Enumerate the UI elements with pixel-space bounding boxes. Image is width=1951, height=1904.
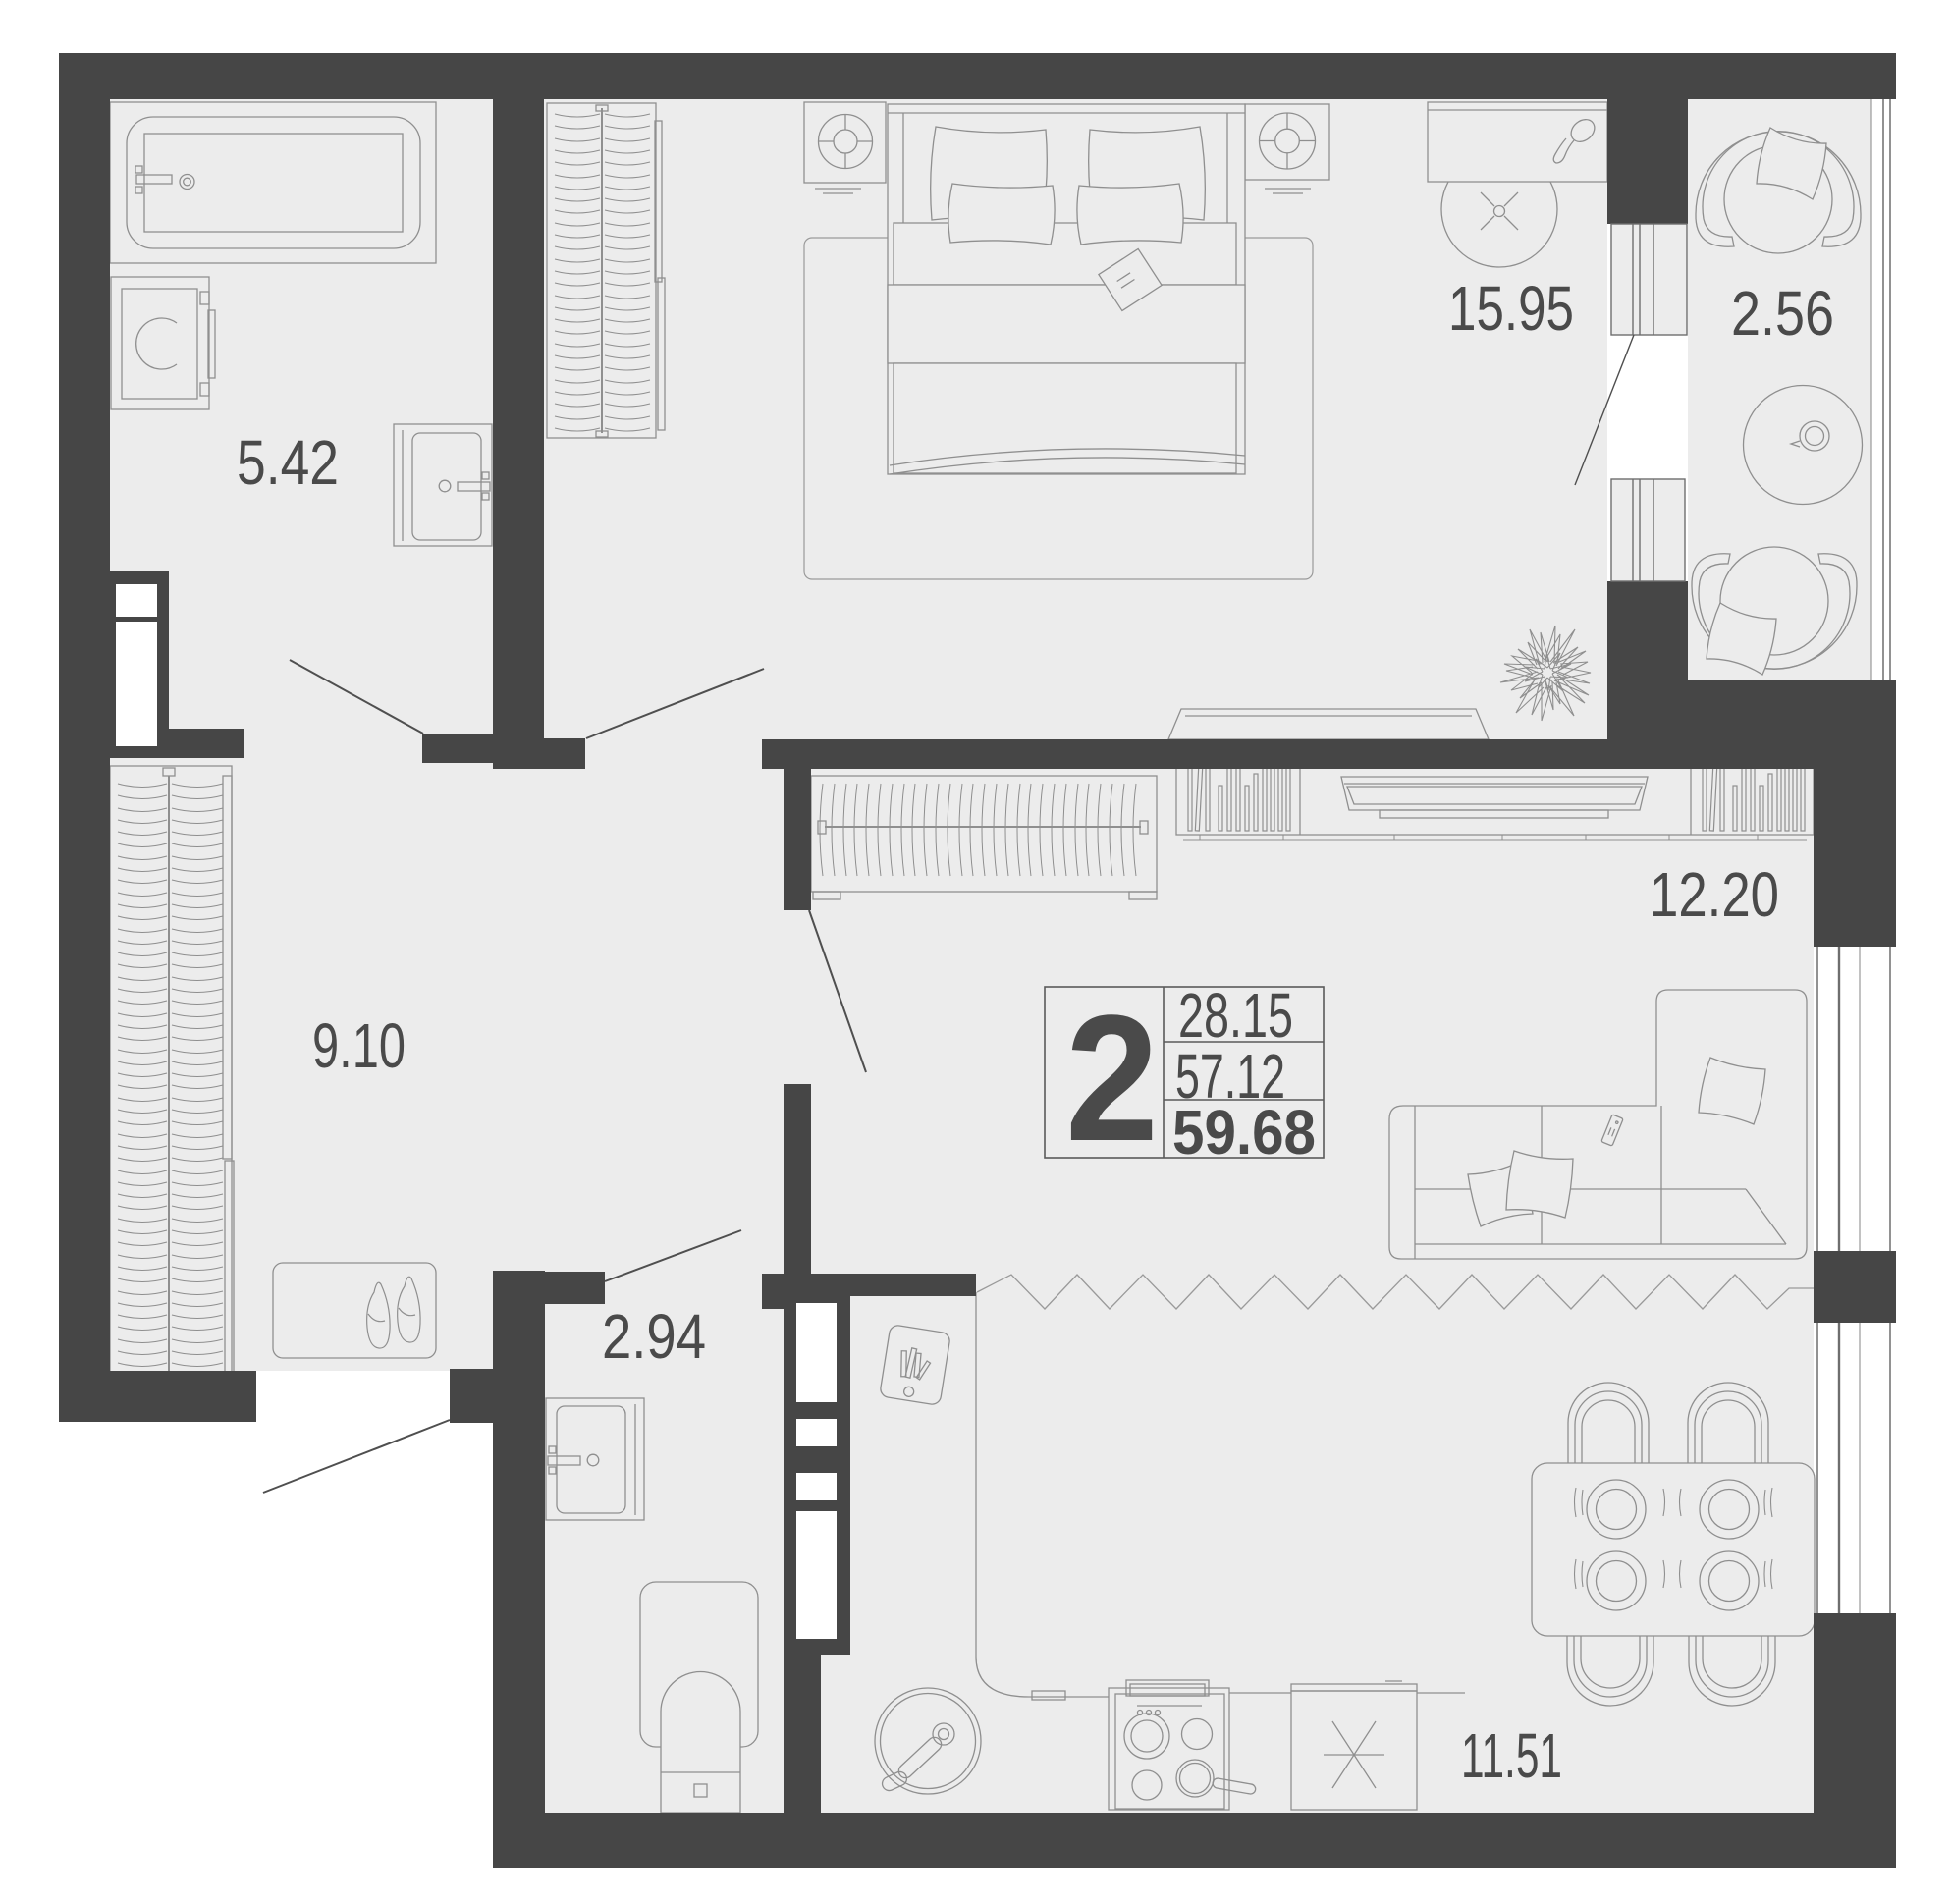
svg-text:5.42: 5.42 [237,427,339,498]
svg-text:2.56: 2.56 [1731,278,1834,349]
svg-text:12.20: 12.20 [1650,859,1779,930]
svg-text:9.10: 9.10 [312,1010,406,1081]
svg-text:15.95: 15.95 [1448,273,1574,344]
svg-text:11.51: 11.51 [1461,1720,1562,1791]
svg-text:2: 2 [1065,977,1159,1178]
svg-text:59.68: 59.68 [1172,1097,1316,1168]
svg-text:2.94: 2.94 [602,1301,706,1372]
